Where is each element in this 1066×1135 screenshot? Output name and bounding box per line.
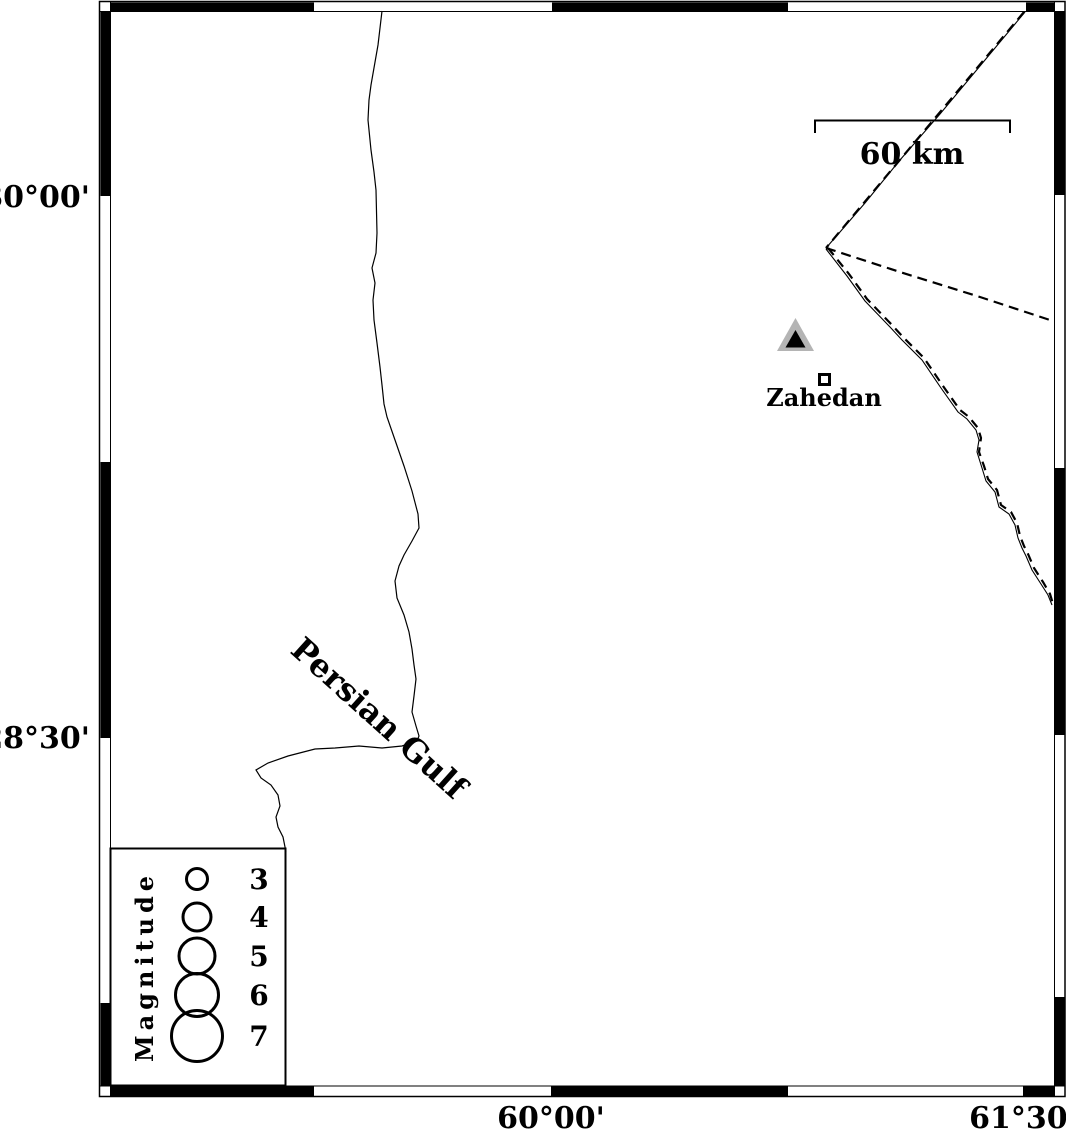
map-figure: 60 km Zahedan Persian Gulf Magnitude 3 4… (0, 0, 1066, 1135)
legend-value-m5: 5 (249, 940, 268, 973)
legend-value-m3: 3 (249, 863, 268, 896)
frame-segment (1055, 997, 1065, 1086)
axis-label-lat-2830: 28°30' (0, 721, 90, 756)
axis-label-lat-30: 30°00' (0, 180, 90, 215)
frame-segment (552, 3, 788, 12)
frame-segment (1055, 468, 1065, 735)
frame-segment (111, 3, 314, 12)
frame-segment (551, 1087, 788, 1097)
legend-value-m4: 4 (249, 901, 268, 934)
legend: Magnitude 3 4 5 6 7 (111, 849, 286, 1086)
map-svg: 60 km Zahedan Persian Gulf Magnitude 3 4… (0, 0, 1066, 1135)
axis-label-lon-6130: 61°30' (969, 1101, 1066, 1135)
scale-bar-label: 60 km (860, 137, 965, 172)
city-label: Zahedan (766, 383, 882, 412)
frame-segment (111, 1087, 314, 1097)
axis-label-lon-60: 60°00' (497, 1101, 605, 1135)
frame-segment (101, 462, 111, 738)
legend-value-m6: 6 (249, 979, 268, 1012)
legend-title: Magnitude (130, 871, 159, 1062)
frame-segment (101, 12, 111, 196)
frame-segment (1026, 3, 1054, 12)
frame-segment (1023, 1087, 1054, 1097)
frame-segment (1055, 12, 1065, 195)
frame-segment (101, 1003, 111, 1086)
legend-value-m7: 7 (249, 1020, 268, 1053)
